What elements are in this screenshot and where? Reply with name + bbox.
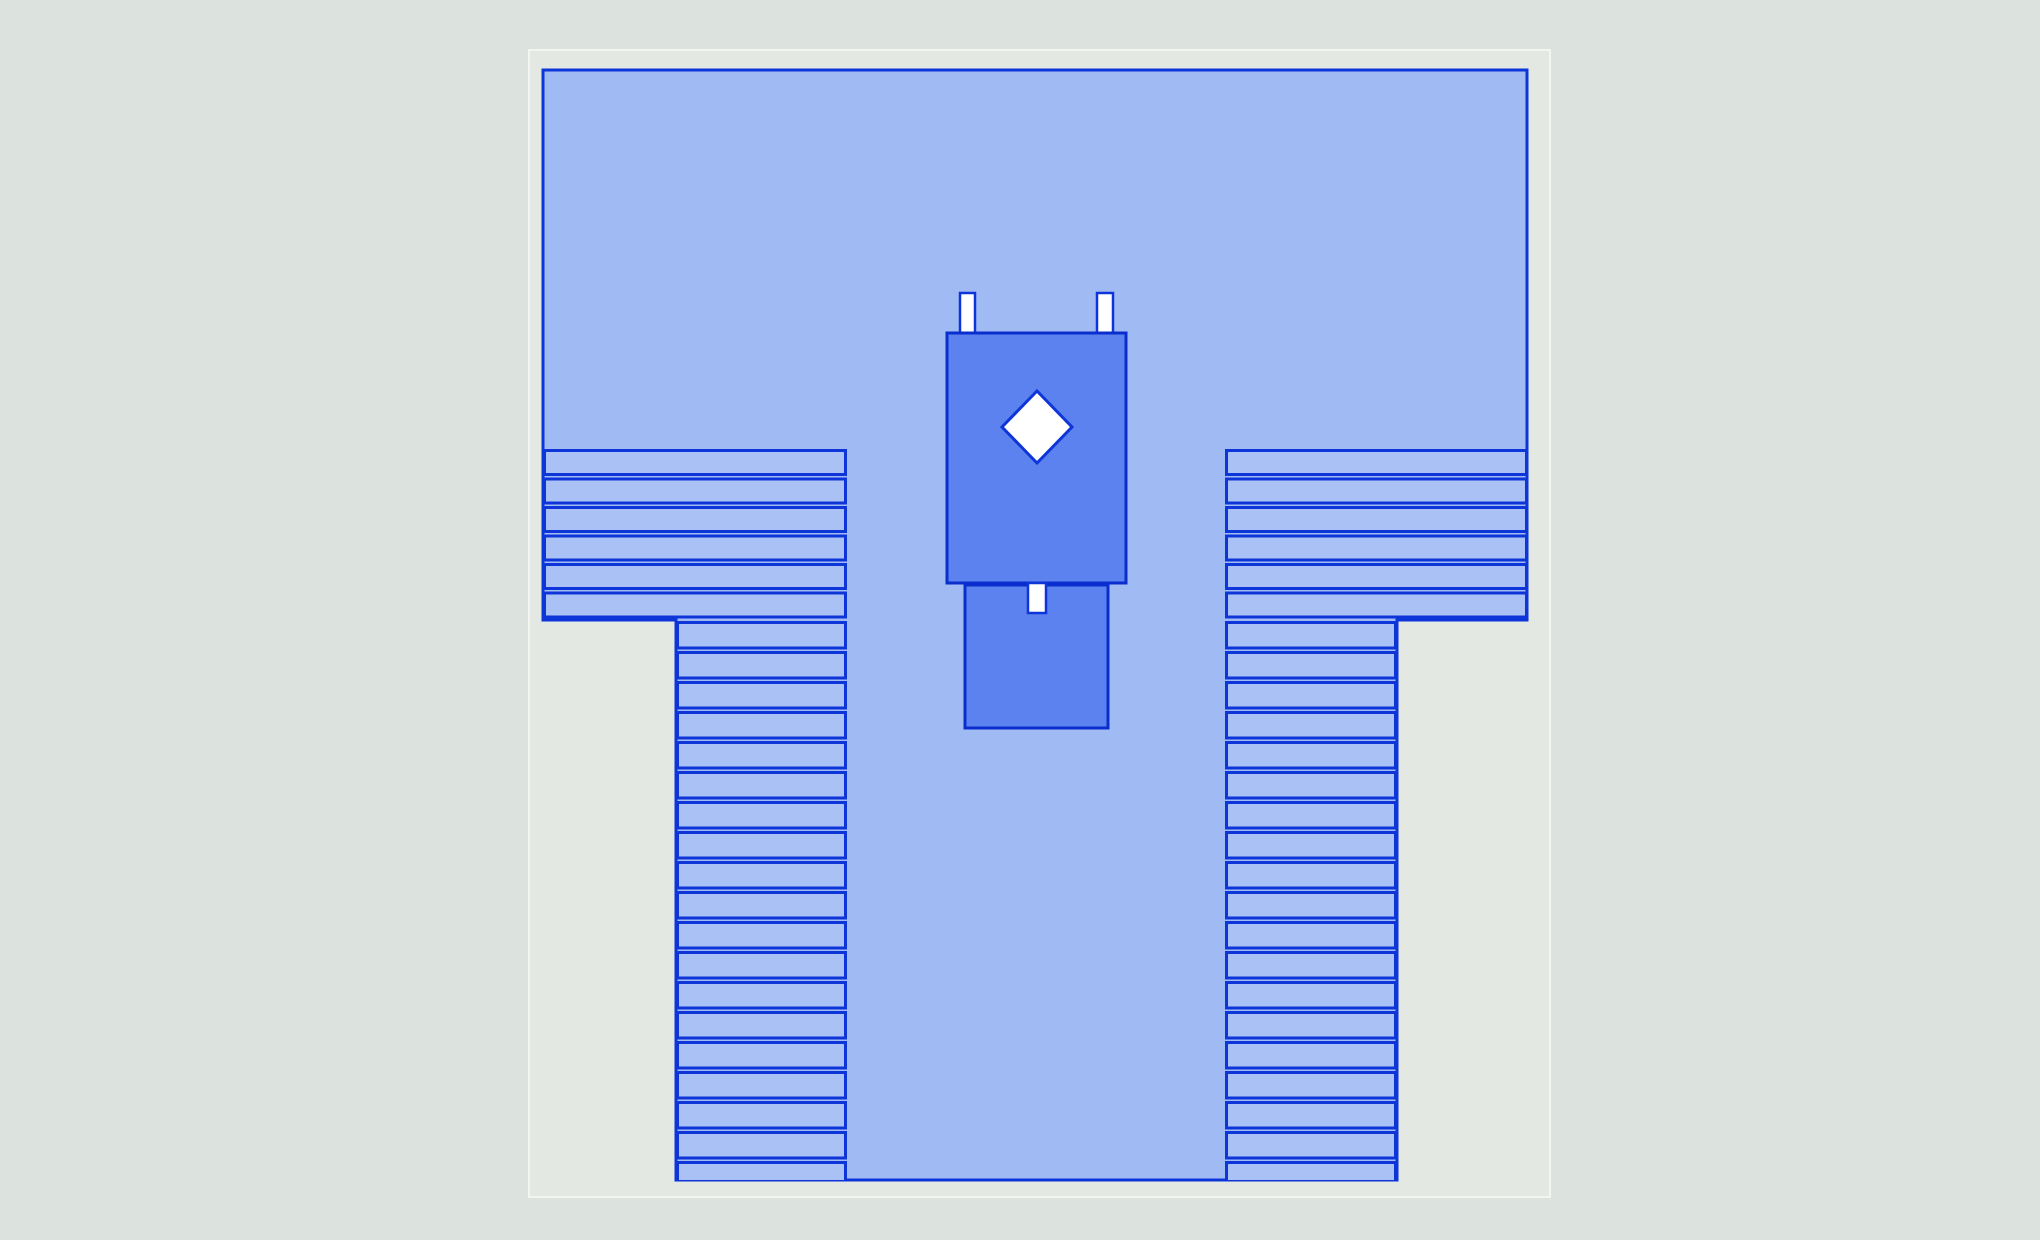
diagram-stage xyxy=(0,0,2040,1240)
stripe xyxy=(1227,803,1396,829)
stripe xyxy=(678,653,846,679)
stripe xyxy=(1227,1043,1396,1069)
stripe xyxy=(678,623,846,649)
stripe xyxy=(1227,508,1527,532)
stripe xyxy=(1227,683,1396,709)
stripe xyxy=(545,536,846,560)
stripe xyxy=(678,713,846,739)
stripe xyxy=(678,1043,846,1069)
stripe xyxy=(1227,653,1396,679)
stripe xyxy=(1227,1013,1396,1039)
stripe xyxy=(678,683,846,709)
stripe xyxy=(678,953,846,979)
stripe xyxy=(1227,593,1527,617)
stripe xyxy=(1227,833,1396,859)
stripe xyxy=(1227,451,1527,475)
stripe xyxy=(1227,953,1396,979)
stripe xyxy=(545,479,846,503)
vehicle xyxy=(947,293,1126,728)
stripe xyxy=(678,803,846,829)
stripe xyxy=(1227,713,1396,739)
vehicle-hitch xyxy=(1028,583,1046,613)
stripe-block-lower-right xyxy=(1227,623,1396,1189)
stripe xyxy=(1227,893,1396,919)
stripe xyxy=(1227,1073,1396,1099)
stripe xyxy=(545,565,846,589)
stripe xyxy=(1227,623,1396,649)
stripe xyxy=(678,1073,846,1099)
stripe xyxy=(678,983,846,1009)
stripe xyxy=(678,923,846,949)
stripe xyxy=(545,508,846,532)
stripe xyxy=(1227,565,1527,589)
stripe xyxy=(678,863,846,889)
stripe xyxy=(678,743,846,769)
stripe xyxy=(1227,1103,1396,1129)
stripe xyxy=(1227,1133,1396,1159)
stripe xyxy=(678,1133,846,1159)
stripe xyxy=(545,593,846,617)
stripe xyxy=(1227,743,1396,769)
stripe xyxy=(1227,983,1396,1009)
stripe xyxy=(545,451,846,475)
stripe xyxy=(1227,923,1396,949)
stripe-block-lower-left xyxy=(678,623,846,1189)
stripe xyxy=(1227,863,1396,889)
stripe xyxy=(1227,773,1396,799)
stripe xyxy=(678,773,846,799)
stripe xyxy=(678,1103,846,1129)
stripe xyxy=(678,893,846,919)
stripe xyxy=(678,1013,846,1039)
stripe xyxy=(678,833,846,859)
stripe xyxy=(1227,536,1527,560)
diagram-canvas xyxy=(0,0,2040,1240)
stripe xyxy=(1227,479,1527,503)
